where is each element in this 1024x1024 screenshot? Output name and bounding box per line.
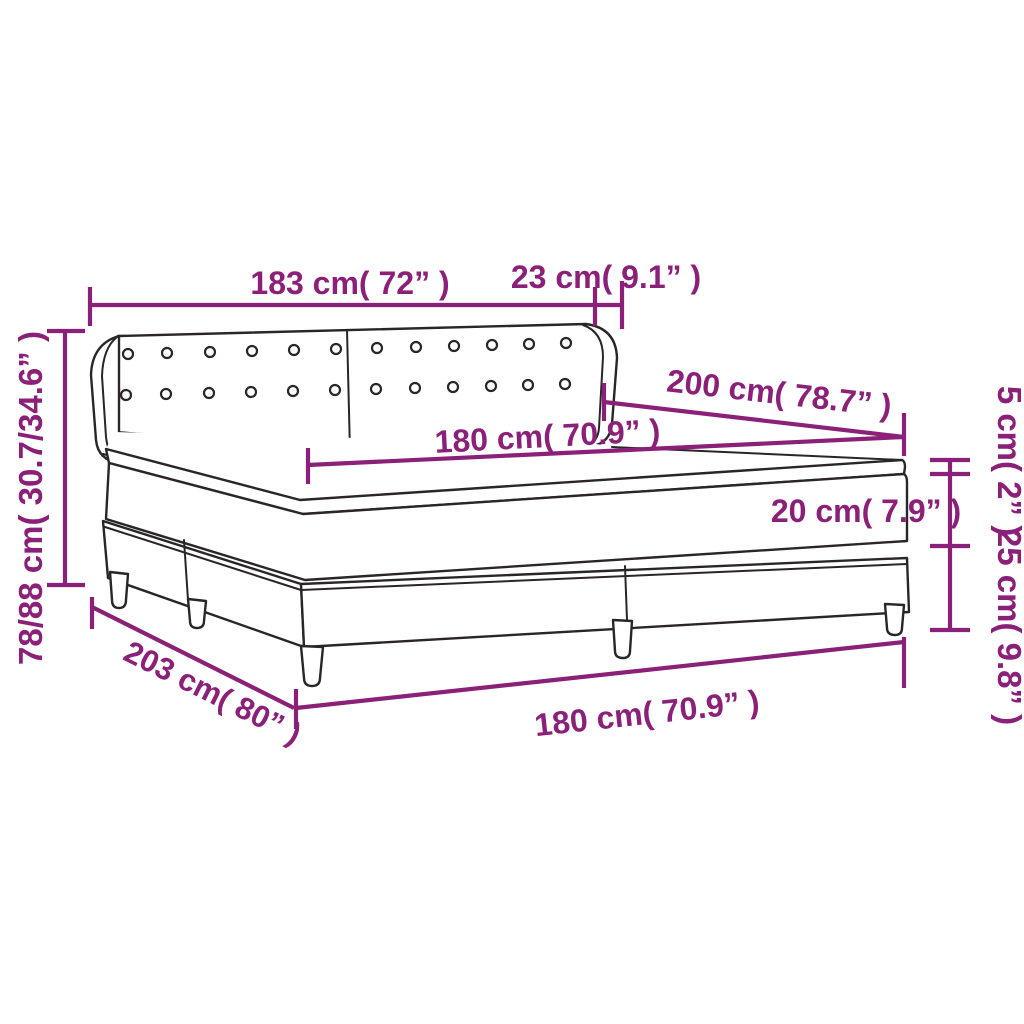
dim-label-total-height: 78/88 cm( 30.7/34.6” ) (12, 331, 49, 665)
dim-label-wing-depth: 23 cm( 9.1” ) (511, 259, 701, 295)
bed-dimension-diagram: 183 cm( 72” ) 23 cm( 9.1” ) 78/88 cm( 30… (0, 0, 1024, 1024)
dim-label-topper-height: 5 cm( 2” ) (991, 386, 1024, 536)
dim-label-headboard-width: 183 cm( 72” ) (250, 265, 449, 301)
leg (110, 572, 128, 608)
leg (885, 604, 904, 635)
leg (301, 646, 323, 686)
bed-dimension-diagram-page: 183 cm( 72” ) 23 cm( 9.1” ) 78/88 cm( 30… (0, 0, 1024, 1024)
dim-label-base-height: 25 cm( 9.8” ) (991, 529, 1024, 725)
dim-label-mattress-height: 20 cm( 7.9” ) (771, 493, 961, 529)
leg (188, 599, 206, 628)
leg (613, 620, 632, 658)
